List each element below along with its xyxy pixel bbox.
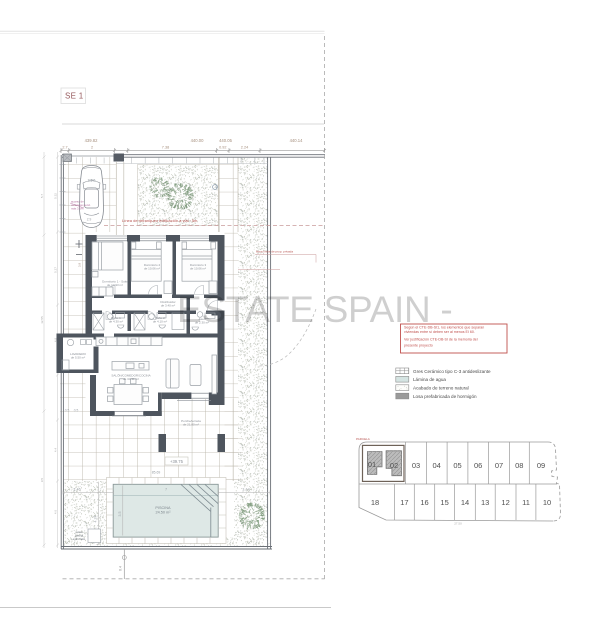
- svg-text:07: 07: [495, 461, 503, 470]
- svg-text:85.69: 85.69: [152, 471, 161, 475]
- svg-text:de 10.06 m²: de 10.06 m²: [190, 267, 206, 271]
- svg-text:2.7: 2.7: [62, 146, 67, 150]
- svg-text:439.82: 439.82: [85, 138, 98, 143]
- svg-text:2.46: 2.46: [73, 488, 80, 492]
- svg-text:SE 1: SE 1: [65, 92, 84, 101]
- svg-text:PARCELA: PARCELA: [356, 437, 370, 441]
- svg-text:línea límite de prop. privada: línea límite de prop. privada: [256, 250, 293, 254]
- svg-text:18: 18: [371, 498, 379, 507]
- svg-text:de 4.10 m²: de 4.10 m²: [153, 319, 167, 323]
- svg-text:04: 04: [433, 461, 441, 470]
- svg-text:06: 06: [474, 461, 482, 470]
- svg-text:0.5: 0.5: [74, 409, 79, 413]
- svg-text:3.9: 3.9: [78, 263, 82, 268]
- svg-text:0.4: 0.4: [119, 566, 123, 571]
- svg-text:2.9: 2.9: [87, 218, 92, 222]
- svg-text:Lámina de agua: Lámina de agua: [413, 377, 446, 382]
- svg-text:27.50: 27.50: [454, 522, 462, 526]
- svg-text:de 4.30 m²: de 4.30 m²: [109, 319, 123, 323]
- svg-text:Acabado de terreno natural: Acabado de terreno natural: [413, 386, 469, 391]
- svg-text:16: 16: [420, 498, 428, 507]
- svg-text:motor: motor: [76, 530, 83, 534]
- svg-text:08: 08: [515, 461, 523, 470]
- svg-text:viviendas entre sí deben ser a: viviendas entre sí deben ser al menos EI…: [404, 330, 475, 334]
- svg-text:440.14: 440.14: [290, 138, 303, 143]
- svg-text:7.38: 7.38: [162, 146, 169, 150]
- svg-text:de 34.31 m²: de 34.31 m²: [123, 377, 139, 381]
- svg-text:03: 03: [412, 461, 420, 470]
- svg-text:Según el CTE-DB-SI1, los eleme: Según el CTE-DB-SI1, los elementos que s…: [404, 326, 484, 330]
- svg-text:24.50 m²: 24.50 m²: [156, 510, 172, 514]
- svg-text:+39.75: +39.75: [170, 459, 184, 464]
- svg-text:13: 13: [481, 498, 489, 507]
- svg-text:05: 05: [453, 461, 461, 470]
- svg-text:2: 2: [91, 146, 93, 150]
- svg-text:2.24: 2.24: [241, 146, 248, 150]
- svg-text:09: 09: [537, 461, 545, 470]
- svg-text:Losa prefabricada de hormigón: Losa prefabricada de hormigón: [413, 394, 477, 399]
- svg-text:de 5.50 m²: de 5.50 m²: [71, 355, 85, 359]
- svg-text:Ver justificación CTE-DB-SI de: Ver justificación CTE-DB-SI de la memori…: [404, 338, 478, 342]
- svg-text:5.27: 5.27: [54, 267, 58, 273]
- svg-text:3.5: 3.5: [118, 512, 122, 517]
- svg-text:02: 02: [390, 461, 398, 470]
- svg-text:emb./salto: emb./salto: [73, 537, 86, 541]
- svg-text:4.4: 4.4: [54, 448, 58, 453]
- svg-text:12: 12: [501, 498, 509, 507]
- svg-text:Gres Cerámico tipo C-3 antides: Gres Cerámico tipo C-3 antideslizante: [413, 369, 491, 374]
- svg-text:0.5: 0.5: [65, 409, 70, 413]
- svg-text:de 21.80 m²: de 21.80 m²: [183, 422, 199, 426]
- svg-text:4.24: 4.24: [94, 516, 98, 523]
- svg-text:piscina: piscina: [75, 533, 84, 537]
- svg-text:de 3.40 m²: de 3.40 m²: [161, 303, 175, 307]
- svg-text:de 13.93 m²: de 13.93 m²: [107, 283, 123, 287]
- svg-text:440.05: 440.05: [219, 138, 232, 143]
- svg-text:presente proyecto: presente proyecto: [404, 344, 433, 348]
- svg-text:9.5: 9.5: [40, 478, 44, 483]
- svg-text:3.14: 3.14: [242, 488, 249, 492]
- svg-text:11: 11: [522, 498, 530, 507]
- svg-text:01: 01: [368, 460, 376, 469]
- svg-text:PISCINA: PISCINA: [155, 506, 171, 510]
- svg-text:10: 10: [543, 498, 551, 507]
- svg-text:Línea de retranqueo edificació: Línea de retranqueo edificación a vial :…: [122, 218, 198, 223]
- svg-text:15: 15: [440, 498, 448, 507]
- svg-text:5.32: 5.32: [54, 193, 58, 199]
- svg-text:7: 7: [165, 488, 167, 492]
- svg-text:14: 14: [461, 498, 469, 507]
- svg-text:440.00: 440.00: [191, 138, 204, 143]
- svg-text:3.5%: 3.5%: [88, 179, 96, 183]
- svg-text:17: 17: [400, 498, 408, 507]
- svg-text:5.7: 5.7: [40, 194, 44, 199]
- svg-text:12.55: 12.55: [40, 316, 44, 324]
- svg-text:4.6: 4.6: [54, 510, 58, 515]
- svg-text:0.92: 0.92: [219, 146, 226, 150]
- svg-text:de 10.06 m²: de 10.06 m²: [144, 267, 160, 271]
